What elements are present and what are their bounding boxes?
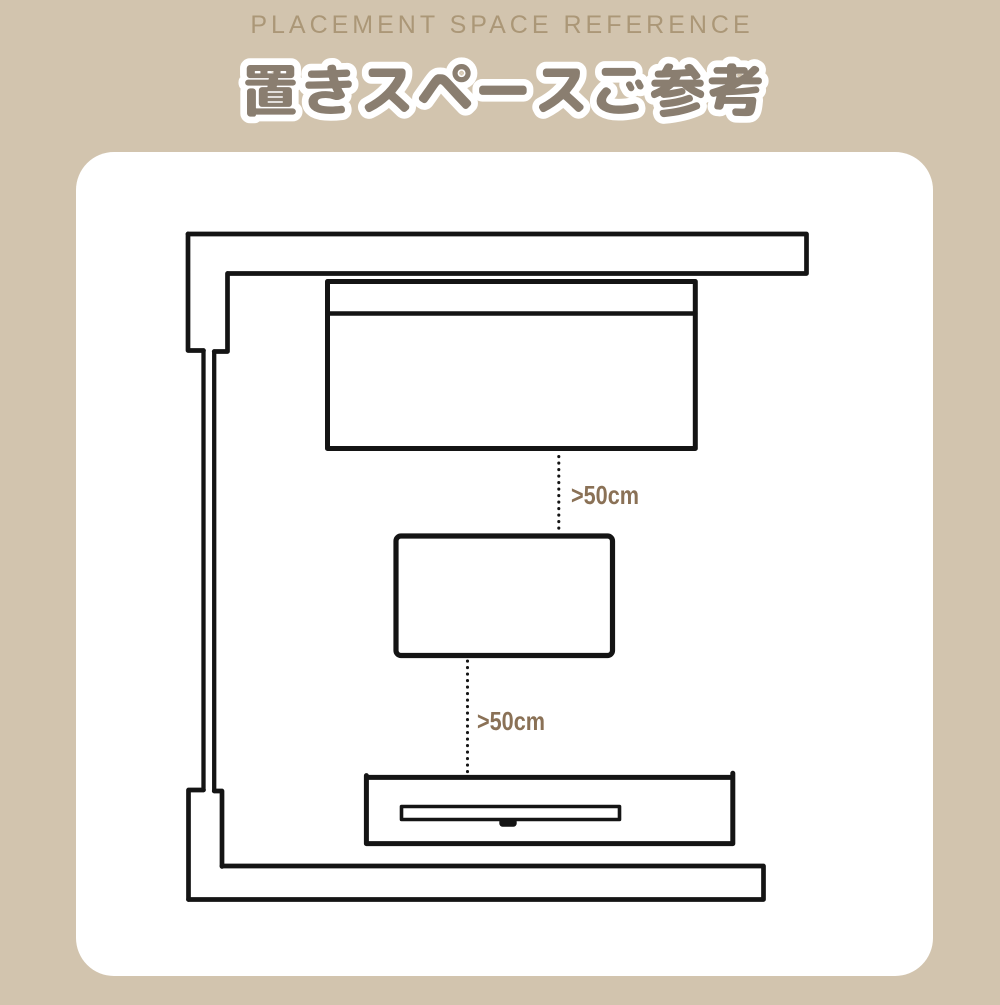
svg-text:>50cm: >50cm [571, 480, 639, 510]
svg-text:PLACEMENT SPACE REFERENCE: PLACEMENT SPACE REFERENCE [250, 11, 753, 39]
svg-text:>50cm: >50cm [477, 706, 545, 736]
